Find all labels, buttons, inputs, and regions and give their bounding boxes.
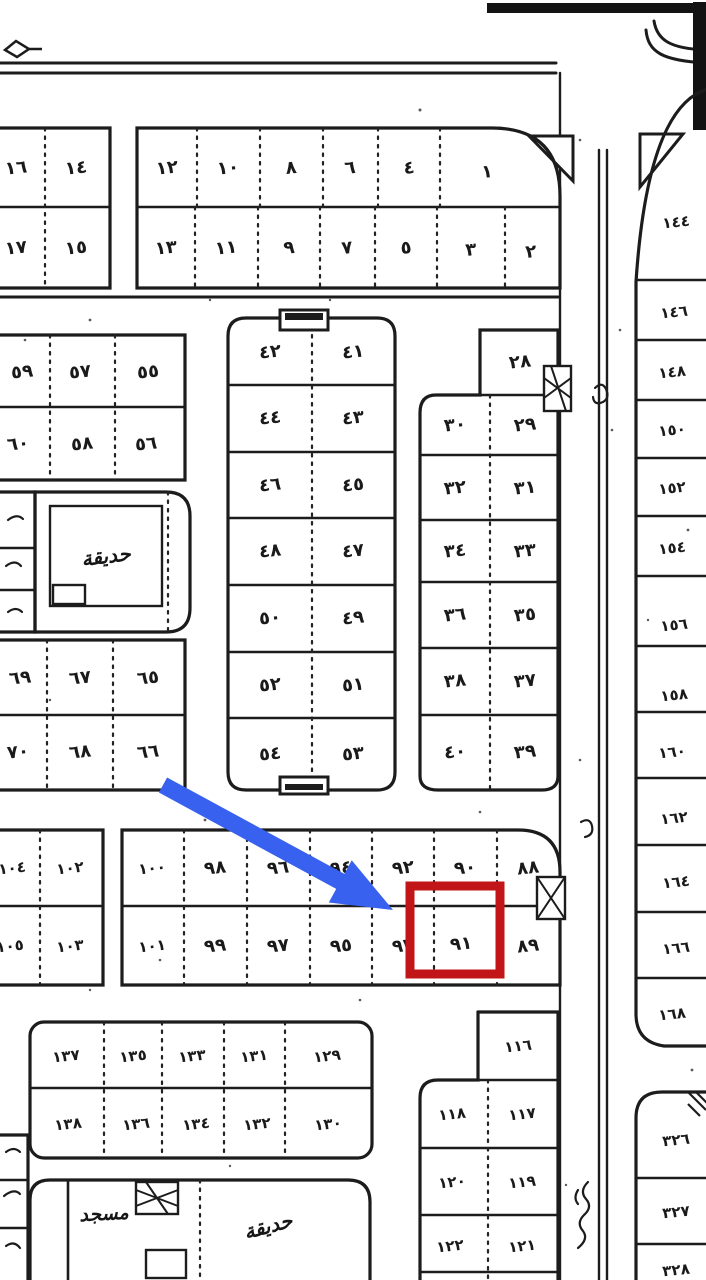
plot-326: ٣٢٦	[661, 1130, 690, 1151]
plot-136: ١٣٦	[121, 1114, 150, 1135]
plot-117: ١١٧	[507, 1104, 536, 1125]
plot-40: ٤٠	[443, 740, 467, 763]
plot-164: ١٦٤	[661, 872, 690, 893]
plot-132: ١٣٢	[242, 1114, 271, 1135]
plot-101: ١٠١	[137, 936, 166, 957]
plot-98: ٩٨	[203, 856, 227, 879]
plot-327: ٣٢٧	[661, 1202, 690, 1223]
utility-box-icons	[136, 366, 706, 1278]
plot-48: ٤٨	[258, 539, 282, 562]
plot-104: ١٠٤	[0, 858, 27, 879]
plot-135: ١٣٥	[118, 1046, 147, 1067]
plot-47: ٤٧	[341, 539, 365, 562]
plot-7: ٧	[340, 237, 353, 259]
plot-144: ١٤٤	[661, 212, 690, 233]
plot-59: ٥٩	[10, 360, 34, 383]
mosque-label: مسجد	[79, 1202, 129, 1227]
plot-118: ١١٨	[437, 1104, 466, 1125]
plot-44: ٤٤	[258, 406, 282, 429]
plot-14: ١٤	[64, 156, 88, 179]
plot-8: ٨	[284, 157, 297, 179]
plot-121: ١٢١	[507, 1236, 536, 1257]
plot-94: ٩٤	[329, 856, 353, 879]
plot-96: ٩٦	[266, 856, 290, 879]
plot-67: ٦٧	[68, 666, 92, 689]
plot-328: ٣٢٨	[661, 1260, 690, 1280]
plot-6: ٦	[343, 157, 356, 179]
plot-52: ٥٢	[258, 673, 282, 696]
plot-34: ٣٤	[443, 539, 467, 562]
plot-56: ٥٦	[134, 432, 158, 455]
plot-69: ٦٩	[8, 666, 32, 689]
plot-12: ١٢	[155, 156, 179, 179]
plot-42: ٤٢	[258, 340, 282, 363]
plot-2: ٢	[524, 241, 537, 263]
plot-103: ١٠٣	[55, 936, 84, 957]
plot-3: ٣	[464, 239, 477, 261]
plot-5: ٥	[399, 237, 412, 259]
plot-130: ١٣٠	[313, 1114, 342, 1135]
plot-154: ١٥٤	[657, 538, 686, 559]
plot-134: ١٣٤	[181, 1114, 210, 1135]
plot-37: ٣٧	[513, 669, 537, 692]
plot-1: ١	[480, 161, 493, 183]
scan-black-bars	[487, 2, 706, 130]
plot-41: ٤١	[341, 340, 365, 363]
plot-dividers-dotted	[40, 128, 505, 1280]
plot-116: ١١٦	[503, 1036, 532, 1057]
block-entry-notches	[280, 310, 328, 794]
plot-92: ٩٢	[391, 856, 415, 879]
scan-noise-dots	[24, 109, 694, 1187]
plot-58: ٥٨	[70, 432, 94, 455]
plot-95: ٩٥	[329, 934, 353, 957]
plot-10: ١٠	[216, 156, 240, 179]
plot-137: ١٣٧	[51, 1046, 80, 1067]
plot-57: ٥٧	[68, 360, 92, 383]
plot-35: ٣٥	[513, 603, 537, 626]
plot-89: ٨٩	[516, 934, 540, 957]
plot-50: ٥٠	[258, 606, 282, 629]
corner-islands	[529, 134, 683, 187]
plot-16: ١٦	[4, 156, 28, 179]
plot-99: ٩٩	[203, 934, 227, 957]
annotation-overlay	[0, 0, 706, 1280]
road-lines	[0, 21, 706, 1280]
plot-70: ٧٠	[6, 740, 30, 763]
plot-17: ١٧	[4, 236, 28, 259]
pointer-arrow-annotation	[159, 778, 393, 911]
plot-162: ١٦٢	[659, 808, 688, 829]
plot-51: ٥١	[341, 673, 365, 696]
plot-88: ٨٨	[516, 856, 540, 879]
plot-97: ٩٧	[266, 934, 290, 957]
garden-label: حديقة	[80, 541, 132, 571]
plot-45: ٤٥	[341, 473, 365, 496]
highlight-box-annotation	[410, 886, 500, 974]
plot-38: ٣٨	[443, 669, 467, 692]
cadastral-map-scan: ١٦ ١٤ ١٧ ١٥ ١٢ ١٠ ٨ ٦ ٤ ١ ١٣ ١١ ٩ ٧ ٥ ٣ …	[0, 0, 706, 1280]
plot-150: ١٥٠	[657, 420, 686, 441]
plot-120: ١٢٠	[437, 1172, 466, 1193]
plot-36: ٣٦	[443, 603, 467, 626]
plot-13: ١٣	[154, 236, 178, 259]
plot-33: ٣٣	[513, 539, 537, 562]
plot-28: ٢٨	[508, 350, 532, 373]
plot-146: ١٤٦	[659, 302, 688, 323]
plot-46: ٤٦	[258, 473, 282, 496]
plot-65: ٦٥	[136, 666, 160, 689]
plot-102: ١٠٢	[55, 858, 84, 879]
plot-60: ٦٠	[6, 432, 30, 455]
plot-30: ٣٠	[443, 413, 467, 436]
garden-label-lower: حديقة	[241, 1208, 295, 1244]
plot-32: ٣٢	[443, 476, 467, 499]
plot-15: ١٥	[64, 236, 88, 259]
plot-129: ١٢٩	[312, 1046, 341, 1067]
plot-105: ١٠٥	[0, 936, 25, 957]
plot-11: ١١	[214, 236, 238, 259]
plot-131: ١٣١	[239, 1046, 268, 1067]
plot-90: ٩٠	[453, 856, 477, 879]
plot-93: ٩٣	[391, 934, 415, 957]
plot-119: ١١٩	[507, 1172, 536, 1193]
plot-160: ١٦٠	[657, 742, 686, 763]
plot-9: ٩	[282, 237, 295, 259]
plot-122: ١٢٢	[435, 1236, 464, 1257]
map-linework	[0, 0, 706, 1280]
plot-4: ٤	[402, 157, 415, 179]
plot-39: ٣٩	[513, 740, 537, 763]
plot-53: ٥٣	[341, 742, 365, 765]
benchmark-symbol	[5, 41, 42, 57]
plot-158: ١٥٨	[659, 685, 688, 706]
plot-29: ٢٩	[513, 413, 537, 436]
plot-152: ١٥٢	[657, 478, 686, 499]
plot-43: ٤٣	[341, 406, 365, 429]
plot-133: ١٣٣	[177, 1046, 206, 1067]
plot-148: ١٤٨	[657, 362, 686, 383]
plot-55: ٥٥	[136, 360, 160, 383]
plot-168: ١٦٨	[657, 1004, 686, 1025]
plot-66: ٦٦	[136, 740, 160, 763]
plot-31: ٣١	[513, 476, 537, 499]
plot-156: ١٥٦	[659, 615, 688, 636]
plot-100: ١٠٠	[137, 858, 166, 879]
plot-54: ٥٤	[258, 742, 282, 765]
plot-138: ١٣٨	[53, 1114, 82, 1135]
plot-166: ١٦٦	[661, 938, 690, 959]
plot-91-highlighted: ٩١	[449, 932, 473, 955]
plot-49: ٤٩	[341, 606, 365, 629]
plot-68: ٦٨	[68, 740, 92, 763]
